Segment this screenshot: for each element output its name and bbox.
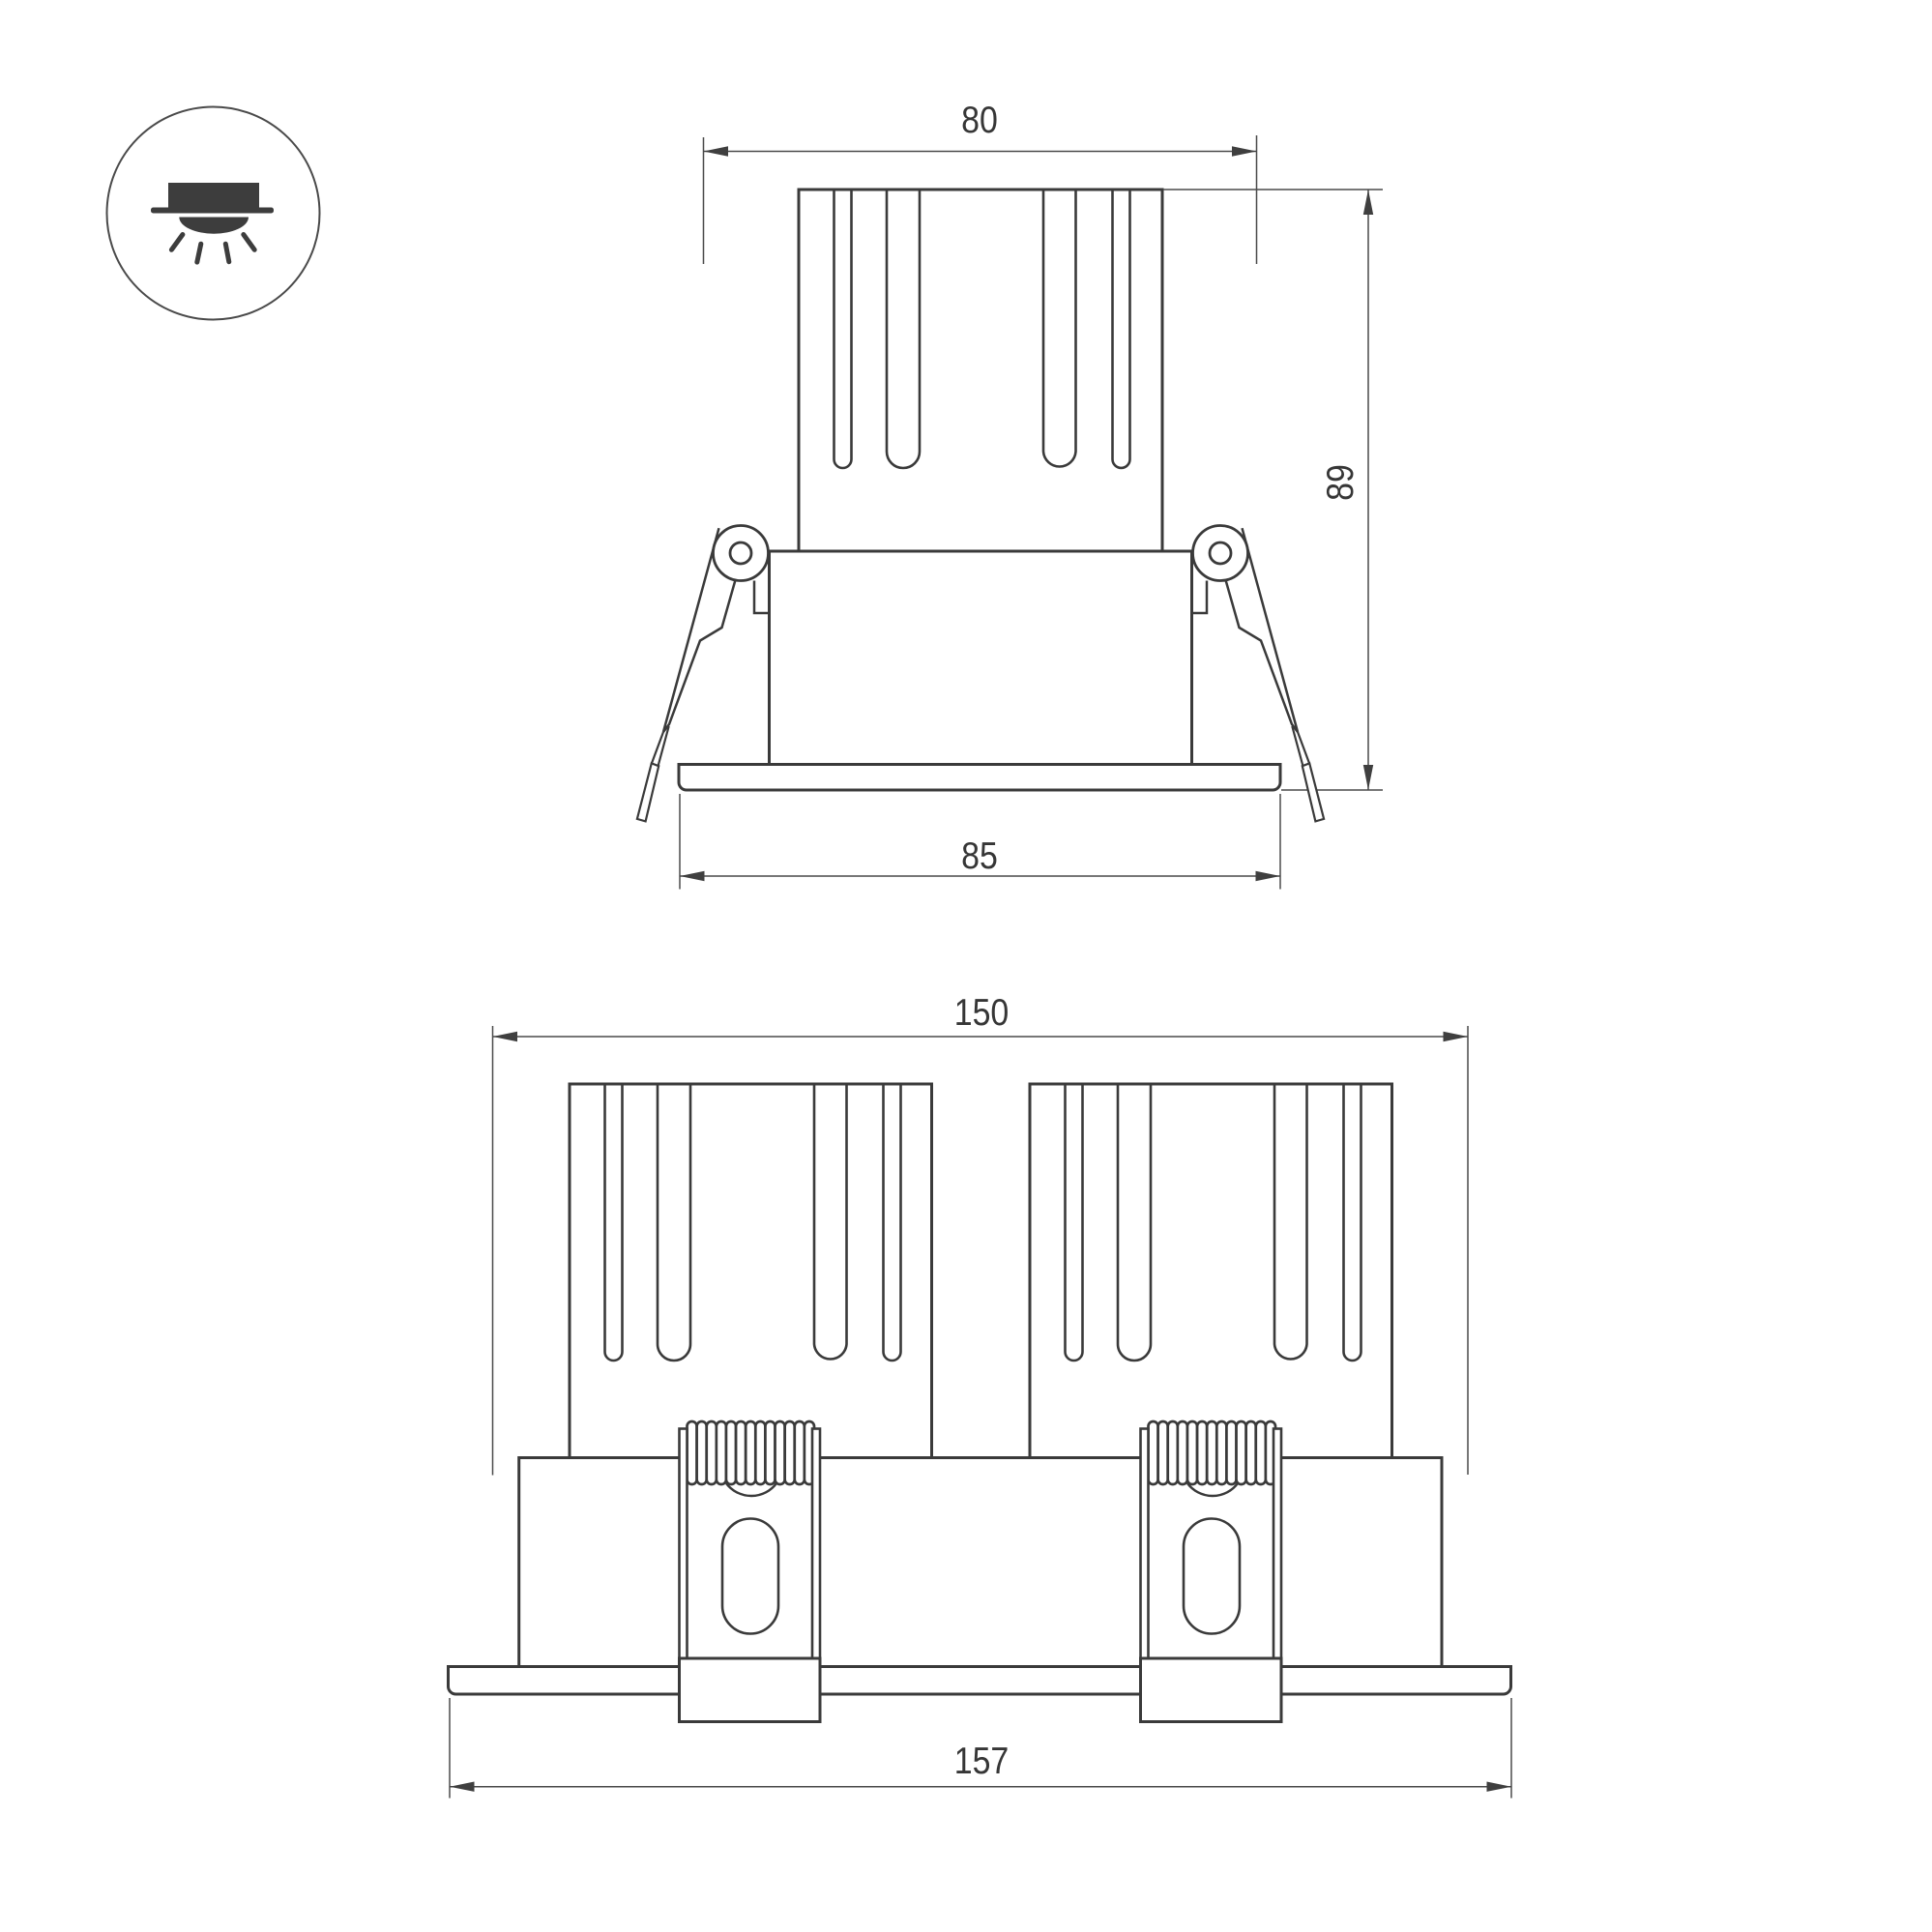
svg-text:80: 80 [961,99,998,141]
svg-text:157: 157 [954,1740,1010,1782]
svg-text:150: 150 [954,991,1010,1034]
svg-text:85: 85 [961,834,998,877]
svg-text:89: 89 [1319,464,1361,501]
